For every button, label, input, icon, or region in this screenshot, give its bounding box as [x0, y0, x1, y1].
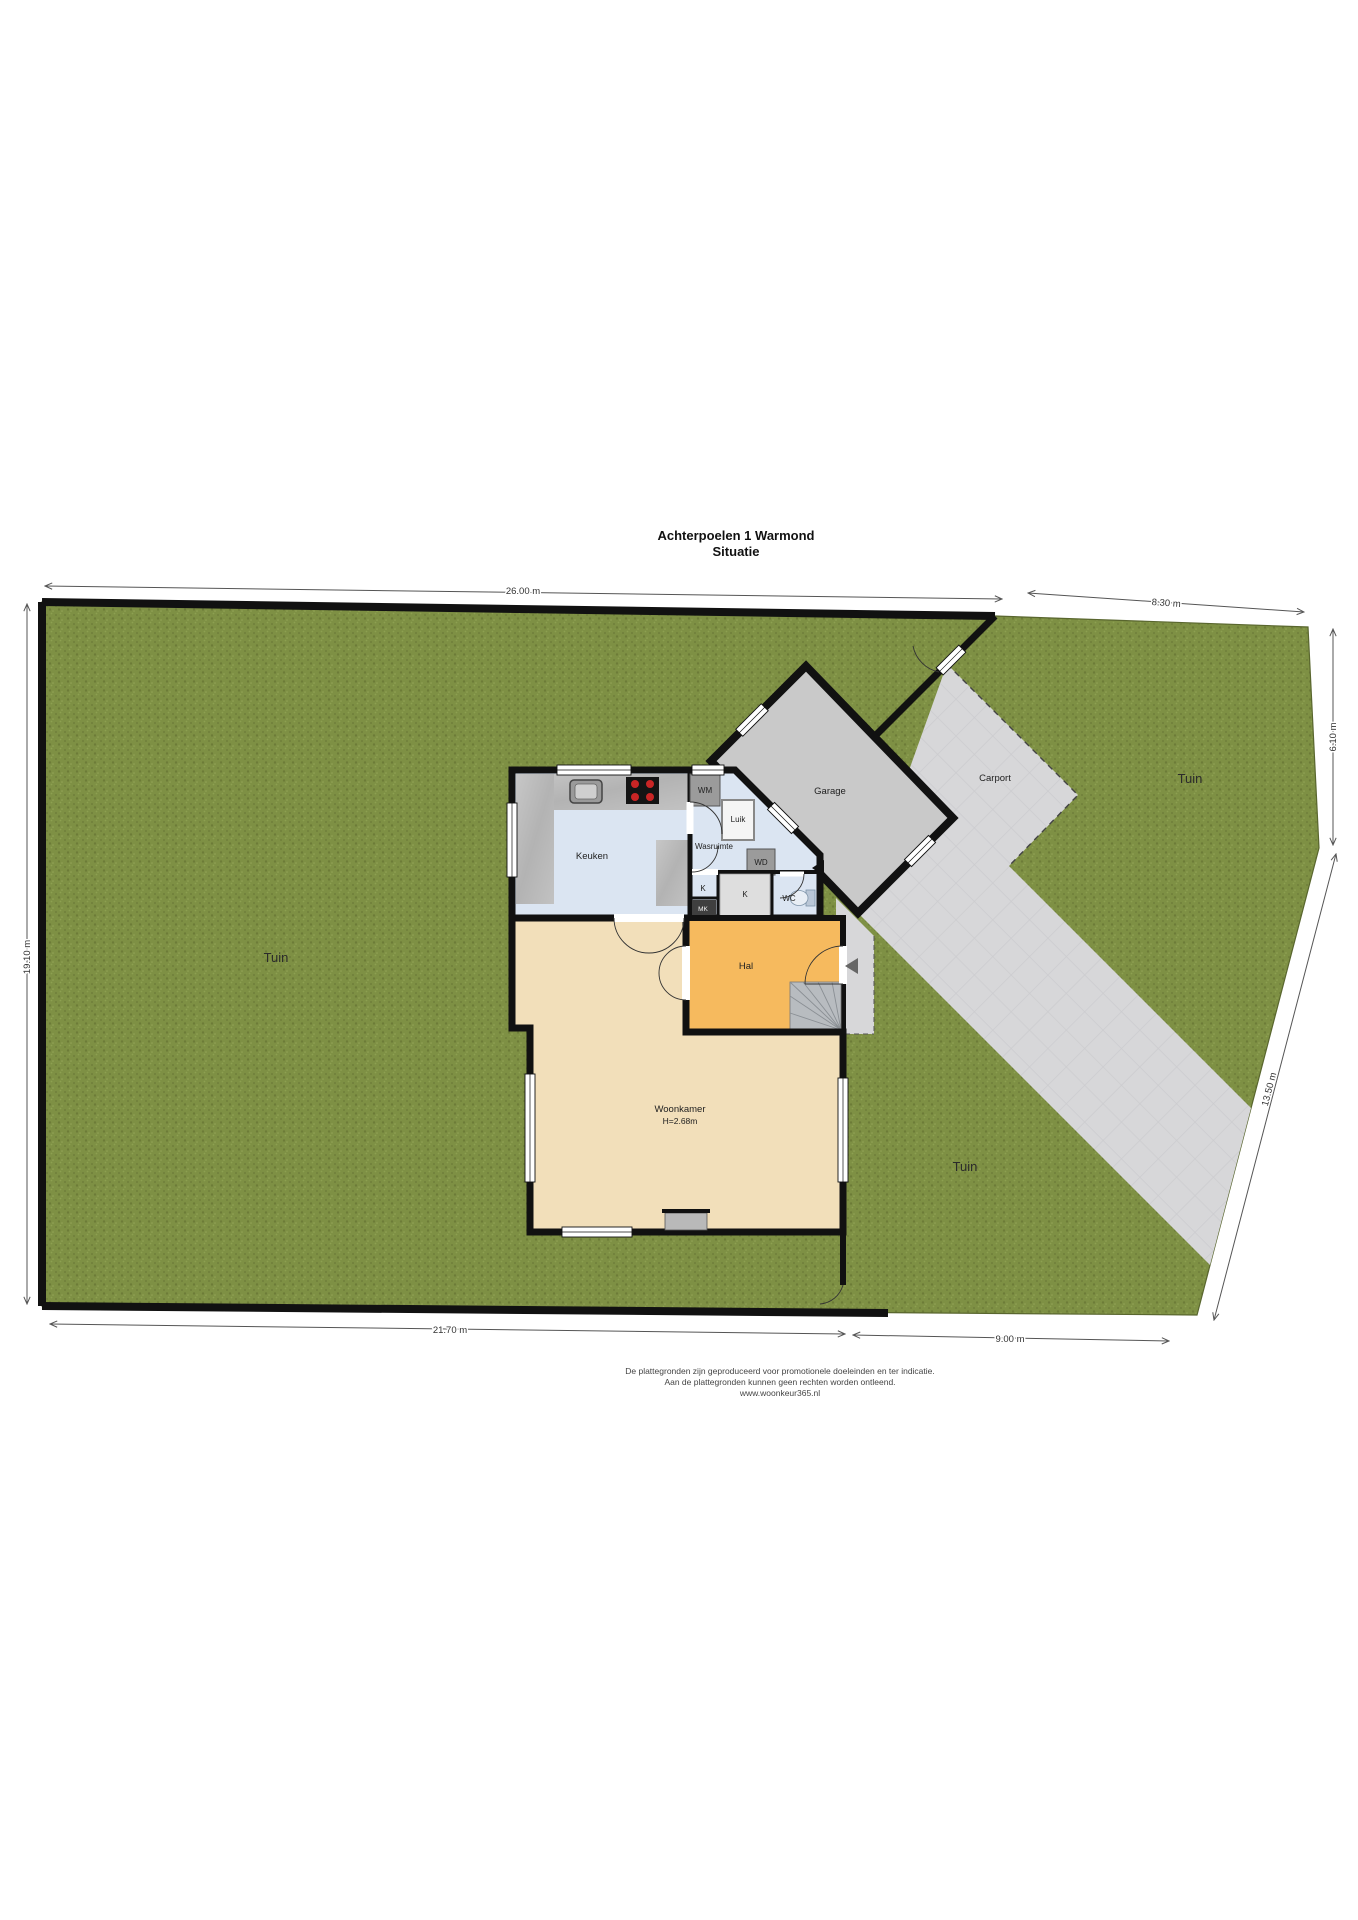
situatie-floorplan-page: Achterpoelen 1 Warmond Situatie Carport [0, 0, 1358, 1920]
woonkamer-right-window [838, 1078, 848, 1182]
dim-right-label: 6.10 m [1328, 722, 1339, 751]
dim-bottom-right-label: 9.00 m [995, 1334, 1024, 1345]
footer-line-2: Aan de plattegronden kunnen geen rechten… [664, 1377, 895, 1387]
dim-right-diagonal-label: 13.50 m [1260, 1071, 1279, 1107]
keuken-top-window [557, 765, 631, 775]
luik-label: Luik [731, 815, 747, 824]
dim-top-label: 26.00 m [506, 586, 540, 597]
hal-label: Hal [739, 961, 753, 972]
dim-top-right-label: 8.30 m [1151, 597, 1181, 610]
woonkamer-bottom-window [562, 1227, 632, 1237]
kitchen-sink-icon [570, 780, 602, 803]
k-closet-small-label: K [700, 884, 706, 893]
fireplace [662, 1211, 710, 1230]
wasruimte-top-window [692, 765, 724, 775]
kitchen-counter-left [516, 774, 554, 904]
footer-disclaimer: De plattegronden zijn geproduceerd voor … [625, 1366, 935, 1398]
wasruimte-label: Wasruimte [695, 842, 733, 851]
cooktop-icon [626, 777, 659, 804]
site-plan-canvas: Achterpoelen 1 Warmond Situatie Carport [0, 0, 1358, 1920]
tuin-left-label: Tuin [264, 950, 289, 965]
woonkamer-label: Woonkamer [654, 1104, 705, 1115]
keuken-left-window [507, 803, 517, 877]
stairs [790, 982, 841, 1030]
mk-label: MK [698, 906, 708, 913]
woonkamer-height-label: H=2.68m [663, 1116, 698, 1126]
wd-label: WD [754, 858, 768, 867]
carport-label: Carport [979, 773, 1011, 784]
wc-label: WC [782, 894, 796, 903]
woonkamer-left-window [525, 1074, 535, 1182]
hal: Hal [686, 918, 858, 1032]
dim-left-label: 19.10 m [22, 940, 33, 974]
page-title: Achterpoelen 1 Warmond [658, 528, 815, 543]
wm-label: WM [698, 786, 713, 795]
tuin-top-right-label: Tuin [1178, 771, 1203, 786]
dim-bottom-label: 21.70 m [433, 1325, 467, 1336]
k-closet-large-label: K [742, 890, 748, 899]
tuin-bottom-right-label: Tuin [953, 1159, 978, 1174]
page-subtitle: Situatie [713, 544, 760, 559]
footer-line-1: De plattegronden zijn geproduceerd voor … [625, 1366, 935, 1376]
plan-title: Achterpoelen 1 Warmond Situatie [658, 528, 815, 559]
garage-label: Garage [814, 786, 846, 797]
footer-line-3: www.woonkeur365.nl [739, 1388, 820, 1398]
kitchen-cabinet-block [656, 840, 688, 906]
keuken-label: Keuken [576, 851, 608, 862]
